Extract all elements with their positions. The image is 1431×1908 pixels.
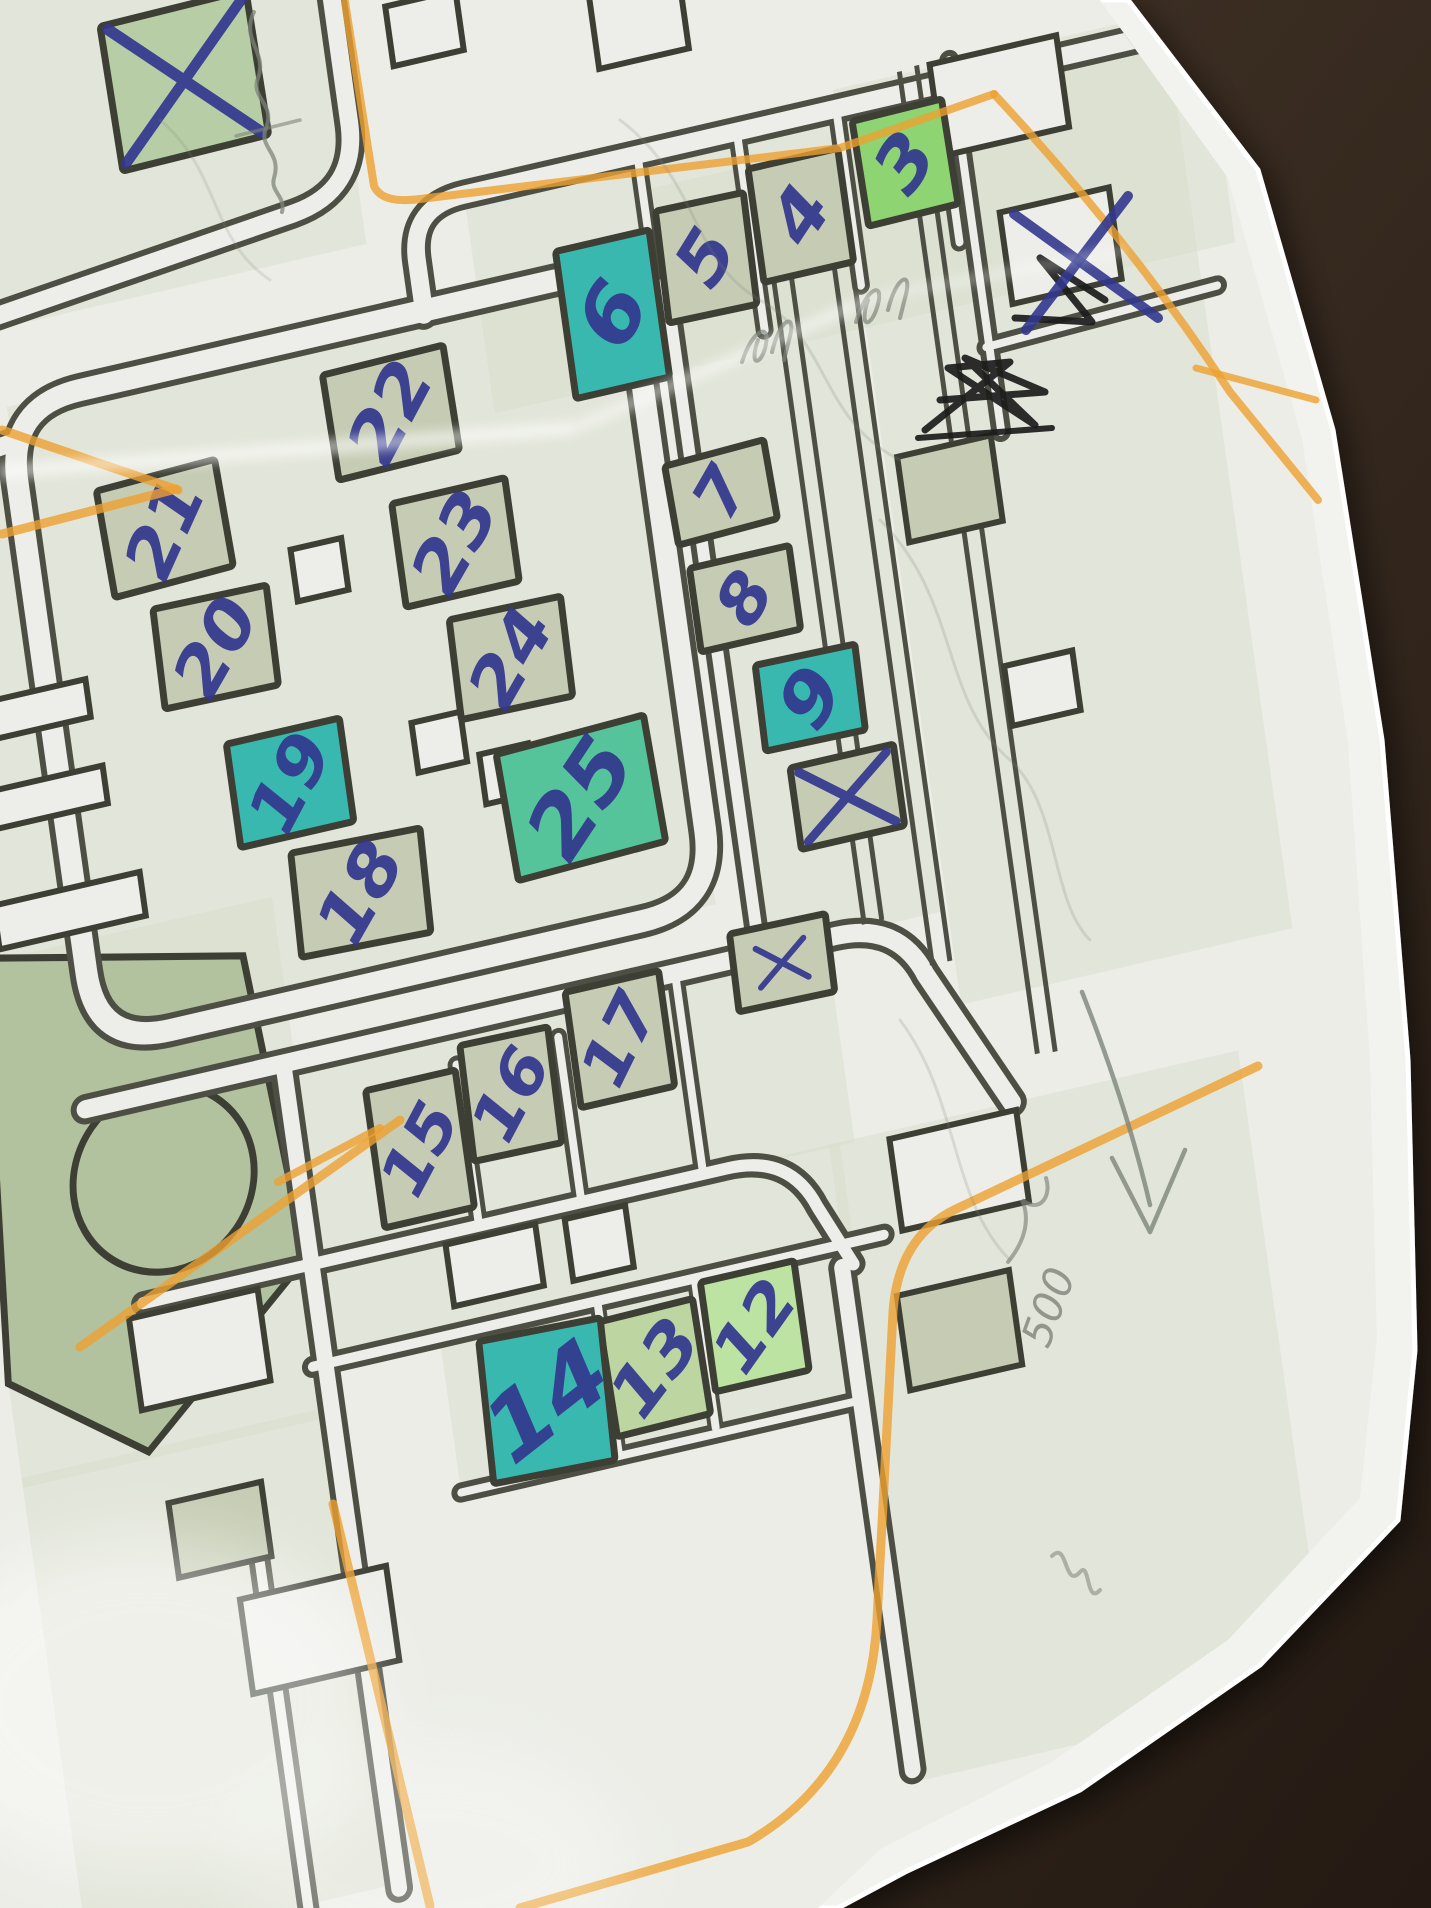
building-outline [1004,650,1081,725]
building-outline [897,435,1003,542]
scene-svg: 21201918222324256543789121314151617500 [0,0,1431,1908]
building-outline [411,712,467,773]
building-outline [565,1205,634,1281]
map-photo: 21201918222324256543789121314151617500 [0,0,1431,1908]
building-outline [291,538,349,601]
